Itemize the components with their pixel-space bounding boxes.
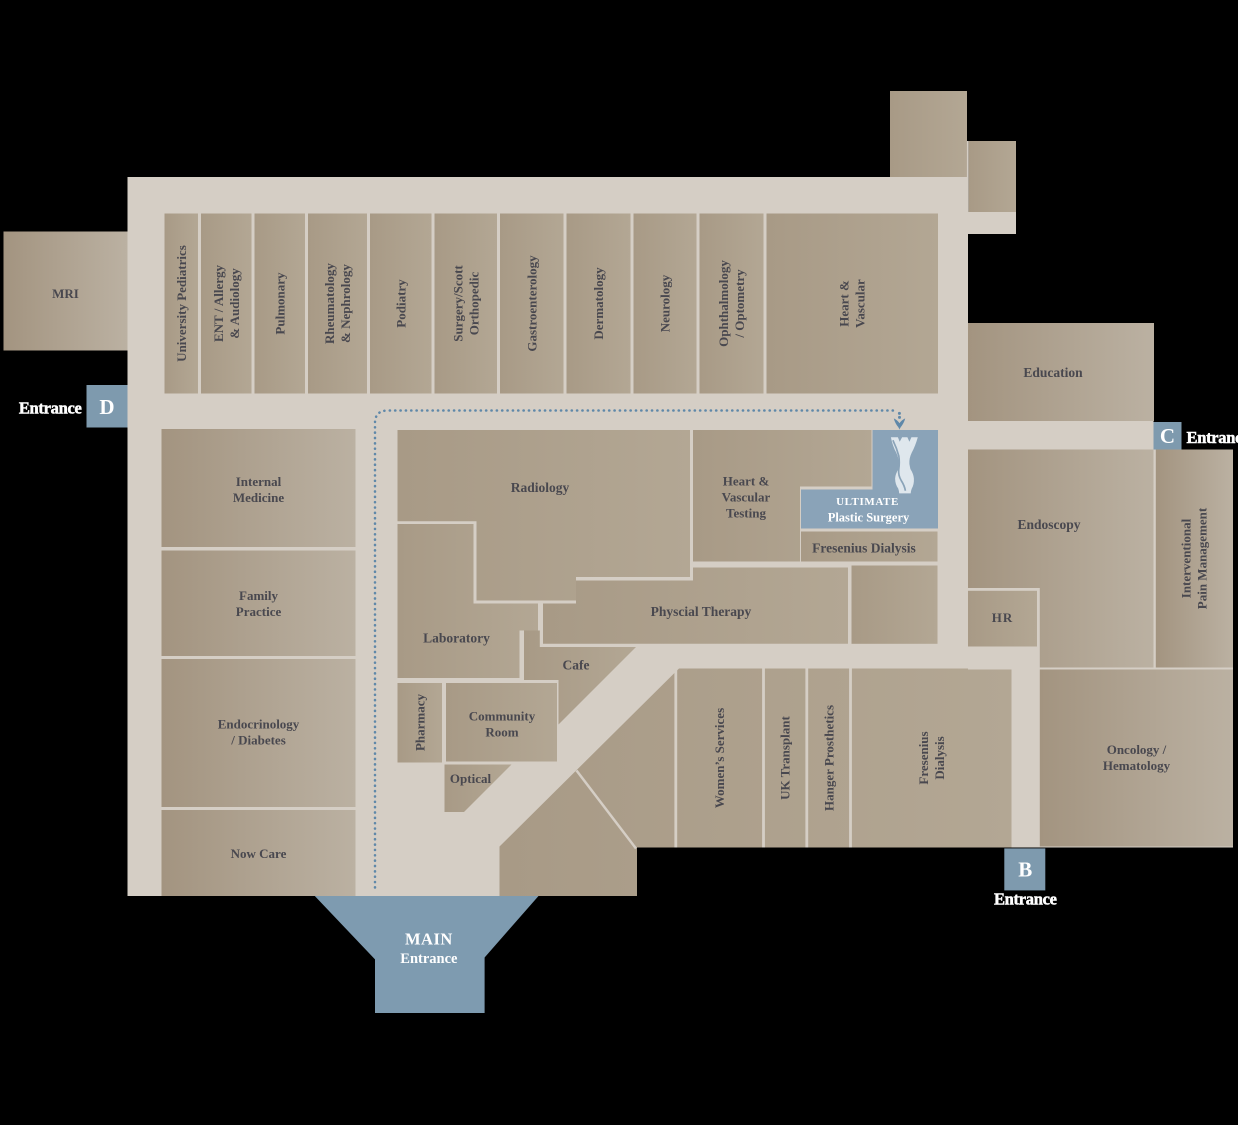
svg-text:Entrance: Entrance xyxy=(400,951,458,967)
svg-text:Neurology: Neurology xyxy=(658,274,673,332)
svg-text:Internal: Internal xyxy=(236,474,282,489)
svg-text:University Pediatrics: University Pediatrics xyxy=(174,245,189,362)
svg-text:Vascular: Vascular xyxy=(722,490,771,505)
svg-text:Vascular: Vascular xyxy=(853,279,868,328)
svg-text:Now Care: Now Care xyxy=(231,846,287,861)
svg-text:Education: Education xyxy=(1023,365,1083,380)
svg-text:Pain Management: Pain Management xyxy=(1194,507,1209,609)
svg-text:MRI: MRI xyxy=(52,286,79,301)
svg-text:Heart &: Heart & xyxy=(723,474,770,489)
svg-text:Room: Room xyxy=(485,725,518,740)
svg-text:D: D xyxy=(99,395,114,419)
svg-text:Pharmacy: Pharmacy xyxy=(413,693,428,751)
svg-text:Endocrinology: Endocrinology xyxy=(218,717,300,732)
svg-text:Entrance: Entrance xyxy=(1187,428,1238,447)
svg-text:ENT / Allergy: ENT / Allergy xyxy=(211,264,226,342)
svg-text:Surgery/Scott: Surgery/Scott xyxy=(450,265,465,342)
svg-text:Fresenius: Fresenius xyxy=(916,731,931,784)
svg-text:MAIN: MAIN xyxy=(405,930,453,949)
svg-text:Orthopedic: Orthopedic xyxy=(466,271,481,335)
svg-text:Optical: Optical xyxy=(450,771,492,786)
svg-text:Fresenius Dialysis: Fresenius Dialysis xyxy=(812,541,916,556)
svg-text:Oncology /: Oncology / xyxy=(1107,742,1167,757)
svg-text:/ Optometry: / Optometry xyxy=(732,269,747,339)
svg-text:Laboratory: Laboratory xyxy=(423,631,490,646)
svg-text:Cafe: Cafe xyxy=(563,658,590,673)
svg-text:B: B xyxy=(1018,858,1032,882)
svg-text:/ Diabetes: / Diabetes xyxy=(230,733,286,748)
svg-text:Ophthalmology: Ophthalmology xyxy=(716,260,731,347)
svg-text:HR: HR xyxy=(992,610,1014,625)
svg-text:Medicine: Medicine xyxy=(233,490,284,505)
svg-text:UK Transplant: UK Transplant xyxy=(777,715,792,799)
svg-text:Entrance: Entrance xyxy=(19,399,82,418)
svg-text:C: C xyxy=(1160,424,1175,448)
svg-text:& Nephrology: & Nephrology xyxy=(338,264,353,343)
svg-text:Women’s Services: Women’s Services xyxy=(712,708,727,808)
svg-text:Testing: Testing xyxy=(726,506,766,521)
svg-text:Plastic Surgery: Plastic Surgery xyxy=(828,511,910,525)
svg-text:Hanger Prosthetics: Hanger Prosthetics xyxy=(822,705,837,811)
svg-text:Hematology: Hematology xyxy=(1103,758,1171,773)
svg-text:Practice: Practice xyxy=(236,604,282,619)
svg-text:Family: Family xyxy=(239,588,278,603)
svg-text:Interventional: Interventional xyxy=(1178,518,1193,598)
svg-text:Podiatry: Podiatry xyxy=(393,279,408,328)
svg-text:Entrance: Entrance xyxy=(994,890,1057,909)
svg-text:& Audiology: & Audiology xyxy=(227,268,242,339)
svg-text:Endoscopy: Endoscopy xyxy=(1017,517,1080,532)
svg-text:Heart &: Heart & xyxy=(837,280,852,327)
svg-text:ULTIMATE: ULTIMATE xyxy=(836,496,899,508)
svg-text:Rheumatology: Rheumatology xyxy=(322,263,337,344)
svg-text:Gastroenterology: Gastroenterology xyxy=(524,255,539,352)
svg-text:Radiology: Radiology xyxy=(511,480,570,495)
svg-text:Physcial Therapy: Physcial Therapy xyxy=(651,604,752,619)
svg-text:Community: Community xyxy=(469,709,536,724)
svg-text:Dermatology: Dermatology xyxy=(591,267,606,340)
svg-text:Dialysis: Dialysis xyxy=(932,736,947,779)
svg-text:Pulmonary: Pulmonary xyxy=(272,272,287,335)
